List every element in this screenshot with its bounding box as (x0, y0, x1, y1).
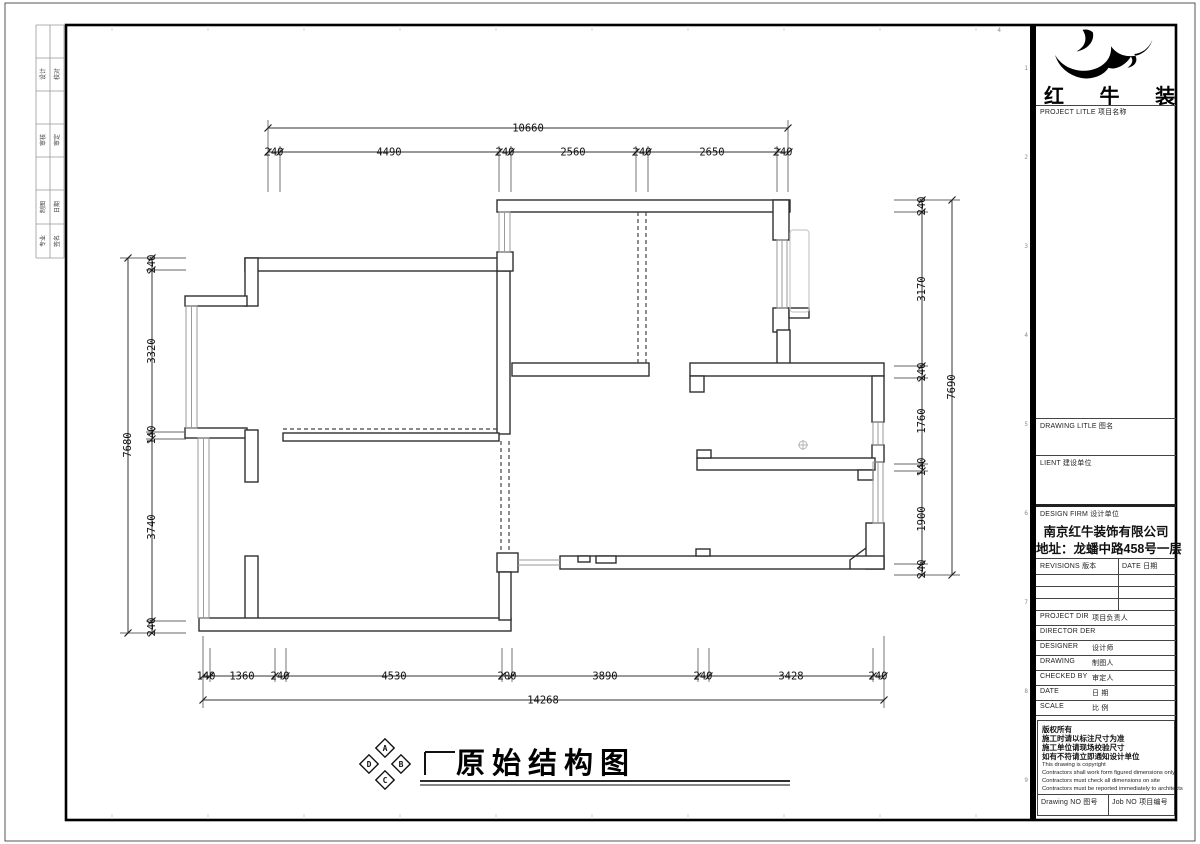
job-no-label: Job NO 项目编号 (1112, 797, 1168, 807)
svg-text:240: 240 (774, 147, 793, 159)
title-block: 红 牛 装 饰 PROJECT LITLE 项目名称 DRAWING LITLE… (1036, 25, 1176, 820)
field-cn: 制图人 (1092, 658, 1114, 668)
svg-text:1760: 1760 (916, 408, 928, 433)
drawing-title-label: DRAWING LITLE 图名 (1040, 421, 1113, 431)
svg-text:240: 240 (271, 671, 290, 683)
dim-bottom-overall: 14268 (527, 695, 559, 707)
svg-text:3428: 3428 (778, 671, 803, 683)
svg-text:7: 7 (1024, 599, 1028, 606)
note-en: Contractors shall work form figured dime… (1042, 770, 1175, 776)
signoff-cell: 日期 (53, 201, 61, 213)
date-col-label: DATE 日期 (1122, 561, 1158, 571)
cad-sheet: { "frame": { "side_table_rows": [["设计","… (0, 0, 1200, 844)
project-title-label: PROJECT LITLE 项目名称 (1040, 107, 1127, 117)
ceiling-symbol (798, 440, 808, 450)
svg-text:240: 240 (916, 363, 928, 382)
svg-text:9: 9 (1024, 777, 1028, 784)
field-en: SCALE (1040, 703, 1064, 710)
svg-text:5: 5 (1024, 421, 1028, 428)
drawing-title: 原始结构图 (456, 740, 636, 782)
svg-text:240: 240 (146, 255, 158, 274)
rednbull-logo-icon (1048, 29, 1162, 79)
signoff-cell: 设计 (39, 68, 47, 80)
svg-text:6: 6 (1024, 510, 1028, 517)
svg-text:3: 3 (1024, 243, 1028, 250)
svg-text:D: D (367, 760, 372, 769)
drawing-no-label: Drawing NO 图号 (1041, 797, 1098, 807)
top-frame-mark: 4 (997, 27, 1001, 34)
title-bracket (425, 752, 455, 775)
svg-text:240: 240 (916, 560, 928, 579)
field-en: CHECKED BY (1040, 673, 1088, 680)
signoff-cell: 审定 (53, 134, 61, 146)
field-en: DRAWING (1040, 658, 1075, 665)
field-en: DATE (1040, 688, 1059, 695)
svg-text:1900: 1900 (916, 506, 928, 531)
svg-text:200: 200 (498, 671, 517, 683)
signoff-cell: 制图 (39, 201, 47, 213)
note-en: Contractors must be reported immediately… (1042, 786, 1183, 792)
field-cn: 设计师 (1092, 643, 1114, 653)
svg-text:B: B (399, 760, 404, 769)
signoff-cell: 校对 (53, 68, 61, 80)
svg-text:4: 4 (1024, 332, 1028, 339)
svg-text:C: C (383, 776, 388, 785)
svg-text:3740: 3740 (146, 514, 158, 539)
notes-box: 版权所有 施工时请以标注尺寸为准 施工单位请现场校验尺寸 如有不符请立即通知设计… (1037, 720, 1175, 816)
svg-text:240: 240 (265, 147, 284, 159)
svg-text:2650: 2650 (699, 147, 724, 159)
design-firm-label: DESIGN FIRM 设计单位 (1040, 509, 1119, 519)
svg-text:240: 240 (633, 147, 652, 159)
revisions-label: REVISIONS 版本 (1040, 561, 1096, 571)
signoff-cell: 专业 (39, 235, 47, 247)
sheet-frame (5, 3, 1195, 841)
svg-text:240: 240 (146, 618, 158, 637)
svg-text:2: 2 (1024, 154, 1028, 161)
note-cn: 如有不符请立即通知设计单位 (1042, 751, 1140, 762)
svg-text:140: 140 (197, 671, 216, 683)
svg-text:4490: 4490 (376, 147, 401, 159)
field-cn: 日 期 (1092, 688, 1109, 698)
signoff-cell: 审核 (39, 134, 47, 146)
svg-text:140: 140 (916, 458, 928, 477)
svg-text:1360: 1360 (229, 671, 254, 683)
svg-text:A: A (383, 744, 388, 753)
svg-text:140: 140 (146, 426, 158, 445)
svg-text:4530: 4530 (381, 671, 406, 683)
dim-left-overall: 7680 (122, 432, 134, 457)
svg-text:3170: 3170 (916, 276, 928, 301)
note-en: Contractors must check all dimensions on… (1042, 778, 1160, 784)
client-label: LIENT 建设单位 (1040, 458, 1092, 468)
field-en: DESIGNER (1040, 643, 1078, 650)
frame-reference-numbers: 1 2 3 4 5 6 7 8 9 4 (997, 27, 1028, 784)
field-cn: 审定人 (1092, 673, 1114, 683)
note-en: This drawing is copyright (1042, 762, 1106, 768)
firm-address: 地址：龙蟠中路458号一层 (1036, 538, 1176, 557)
svg-text:8: 8 (1024, 688, 1028, 695)
svg-text:240: 240 (916, 197, 928, 216)
signoff-cell: 签名 (53, 235, 61, 247)
svg-text:240: 240 (496, 147, 515, 159)
field-cn: 比 例 (1092, 703, 1109, 713)
svg-text:1: 1 (1024, 65, 1028, 72)
svg-text:240: 240 (869, 671, 888, 683)
svg-text:3320: 3320 (146, 338, 158, 363)
drawing-sheet-svg: 设计 校对 审核 审定 制图 日期 专业 签名 1 2 3 4 5 6 7 8 … (0, 0, 1200, 844)
svg-text:3890: 3890 (592, 671, 617, 683)
dim-top-overall: 10660 (512, 123, 544, 135)
floor-plan-walls (185, 200, 884, 631)
bay-window-outline (790, 230, 809, 312)
svg-text:2560: 2560 (560, 147, 585, 159)
svg-text:240: 240 (694, 671, 713, 683)
field-cn: 项目负责人 (1092, 613, 1128, 623)
dim-right-overall: 7690 (946, 374, 958, 399)
field-en: PROJECT DIR (1040, 613, 1089, 620)
field-en: DIRECTOR DER (1040, 628, 1096, 635)
